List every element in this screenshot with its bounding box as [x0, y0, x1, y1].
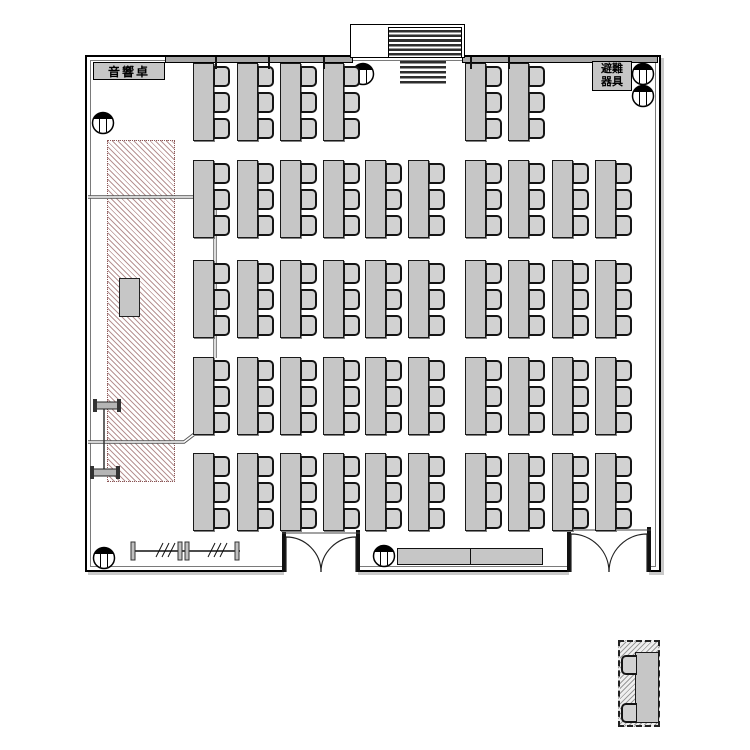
chair	[429, 482, 445, 503]
chair	[344, 118, 360, 139]
chair	[301, 360, 317, 381]
chair	[616, 456, 632, 477]
table	[280, 260, 301, 338]
chair	[344, 456, 360, 477]
chair	[214, 163, 230, 184]
chair	[573, 189, 589, 210]
chair	[486, 263, 502, 284]
chair	[429, 315, 445, 336]
chair	[258, 118, 274, 139]
chair	[344, 215, 360, 236]
table	[408, 260, 429, 338]
chair	[301, 315, 317, 336]
partition-hanger-tick	[268, 57, 270, 69]
chair	[573, 289, 589, 310]
chair	[258, 386, 274, 407]
chair	[386, 360, 402, 381]
chair	[344, 315, 360, 336]
chair	[621, 703, 637, 723]
chair	[344, 508, 360, 529]
partition-hanger-tick	[323, 57, 325, 69]
table	[323, 63, 344, 141]
chair	[344, 263, 360, 284]
table	[465, 260, 486, 338]
evacuation-label-line2: 器具	[601, 76, 623, 89]
chair	[214, 118, 230, 139]
table	[365, 357, 386, 435]
chair	[573, 360, 589, 381]
chair	[344, 189, 360, 210]
table	[323, 160, 344, 238]
chair	[486, 189, 502, 210]
chair	[486, 482, 502, 503]
chair	[258, 189, 274, 210]
legend-table	[635, 652, 659, 723]
table	[465, 160, 486, 238]
table	[595, 160, 616, 238]
partition-hanger-tick	[215, 57, 217, 69]
chair	[573, 263, 589, 284]
chair	[214, 386, 230, 407]
table	[237, 453, 258, 531]
chair	[573, 163, 589, 184]
chair	[258, 508, 274, 529]
chair	[386, 456, 402, 477]
table	[323, 357, 344, 435]
table	[508, 453, 529, 531]
chair	[486, 508, 502, 529]
chair	[301, 289, 317, 310]
chair	[616, 163, 632, 184]
table	[193, 453, 214, 531]
chair	[258, 412, 274, 433]
table	[193, 260, 214, 338]
table	[193, 160, 214, 238]
chair	[301, 456, 317, 477]
table	[193, 63, 214, 141]
chair	[573, 412, 589, 433]
table	[237, 357, 258, 435]
sound-console-label: 音響卓	[93, 62, 165, 80]
floor-plan: 音響卓 避難 器具	[0, 0, 750, 750]
table	[280, 357, 301, 435]
podium	[119, 278, 140, 317]
table	[408, 453, 429, 531]
chair	[386, 508, 402, 529]
chair	[616, 289, 632, 310]
chair	[258, 215, 274, 236]
chair	[573, 215, 589, 236]
partition-hanger-tick	[470, 57, 472, 69]
table	[365, 160, 386, 238]
chair	[301, 163, 317, 184]
chair	[344, 386, 360, 407]
stage-hatch-area	[107, 140, 175, 482]
stairs-upper-icon	[388, 27, 462, 58]
chair	[486, 315, 502, 336]
chair	[214, 66, 230, 87]
chair	[616, 482, 632, 503]
chair	[529, 508, 545, 529]
chair	[386, 289, 402, 310]
table	[595, 357, 616, 435]
chair	[386, 263, 402, 284]
table	[552, 357, 573, 435]
table	[193, 357, 214, 435]
chair	[258, 360, 274, 381]
chair	[386, 215, 402, 236]
chair	[429, 163, 445, 184]
table	[508, 160, 529, 238]
chair	[214, 315, 230, 336]
table	[237, 260, 258, 338]
chair	[573, 508, 589, 529]
chair	[429, 189, 445, 210]
table	[508, 63, 529, 141]
chair	[258, 456, 274, 477]
chair	[301, 92, 317, 113]
chair	[486, 386, 502, 407]
chair	[616, 508, 632, 529]
chair	[301, 508, 317, 529]
chair	[486, 289, 502, 310]
chair	[486, 92, 502, 113]
chair	[529, 263, 545, 284]
chair	[214, 289, 230, 310]
table	[508, 357, 529, 435]
chair	[386, 412, 402, 433]
table	[465, 63, 486, 141]
chair	[214, 508, 230, 529]
chair	[258, 92, 274, 113]
chair	[616, 315, 632, 336]
chair	[429, 215, 445, 236]
chair	[214, 215, 230, 236]
chair	[214, 456, 230, 477]
chair	[214, 92, 230, 113]
chair	[429, 456, 445, 477]
chair	[573, 315, 589, 336]
chair	[344, 66, 360, 87]
chair	[529, 412, 545, 433]
chair	[529, 456, 545, 477]
chair	[616, 360, 632, 381]
chair	[429, 360, 445, 381]
chair	[616, 386, 632, 407]
chair	[529, 92, 545, 113]
table	[508, 260, 529, 338]
chair	[486, 118, 502, 139]
chair	[386, 482, 402, 503]
chair	[301, 263, 317, 284]
chair	[429, 289, 445, 310]
table	[408, 160, 429, 238]
chair	[301, 386, 317, 407]
chair	[486, 360, 502, 381]
chair	[301, 66, 317, 87]
chair	[258, 482, 274, 503]
chair	[386, 163, 402, 184]
evacuation-equipment-label: 避難 器具	[592, 61, 632, 91]
table	[237, 63, 258, 141]
chair	[621, 655, 637, 675]
chair	[258, 163, 274, 184]
chair	[486, 66, 502, 87]
chair	[301, 215, 317, 236]
partition-hanger-tick	[508, 57, 510, 69]
table	[552, 160, 573, 238]
chair	[258, 289, 274, 310]
chair	[529, 66, 545, 87]
chair	[486, 456, 502, 477]
chair	[301, 189, 317, 210]
chair	[301, 118, 317, 139]
chair	[616, 263, 632, 284]
chair	[573, 386, 589, 407]
chair	[486, 163, 502, 184]
chair	[573, 482, 589, 503]
chair	[386, 189, 402, 210]
chair	[616, 412, 632, 433]
table	[595, 260, 616, 338]
chair	[429, 412, 445, 433]
chair	[529, 163, 545, 184]
chair	[344, 412, 360, 433]
chair	[529, 482, 545, 503]
chair	[529, 386, 545, 407]
chair	[429, 508, 445, 529]
chair	[344, 92, 360, 113]
chair	[214, 189, 230, 210]
table	[465, 453, 486, 531]
chair	[344, 360, 360, 381]
chair	[616, 189, 632, 210]
table	[408, 357, 429, 435]
table	[552, 453, 573, 531]
chair	[214, 360, 230, 381]
chair	[429, 386, 445, 407]
table	[365, 260, 386, 338]
table	[465, 357, 486, 435]
chair	[258, 66, 274, 87]
chair	[344, 163, 360, 184]
chair	[386, 315, 402, 336]
table	[323, 453, 344, 531]
chair	[214, 263, 230, 284]
evacuation-label-line1: 避難	[601, 63, 623, 76]
stairs-lower-icon	[400, 61, 446, 84]
chair	[529, 118, 545, 139]
chair	[214, 412, 230, 433]
chair	[573, 456, 589, 477]
chair	[301, 482, 317, 503]
table	[280, 63, 301, 141]
chair	[529, 360, 545, 381]
chair	[386, 386, 402, 407]
bench-divider	[470, 549, 471, 564]
chair	[529, 215, 545, 236]
chair	[529, 289, 545, 310]
table	[323, 260, 344, 338]
table	[365, 453, 386, 531]
table	[237, 160, 258, 238]
table	[552, 260, 573, 338]
table	[595, 453, 616, 531]
chair	[344, 289, 360, 310]
chair	[486, 215, 502, 236]
chair	[529, 315, 545, 336]
chair	[429, 263, 445, 284]
chair	[486, 412, 502, 433]
chair	[344, 482, 360, 503]
bench	[397, 548, 543, 565]
table	[280, 160, 301, 238]
chair	[214, 482, 230, 503]
chair	[301, 412, 317, 433]
chair	[616, 215, 632, 236]
chair	[529, 189, 545, 210]
table	[280, 453, 301, 531]
chair	[258, 263, 274, 284]
chair	[258, 315, 274, 336]
